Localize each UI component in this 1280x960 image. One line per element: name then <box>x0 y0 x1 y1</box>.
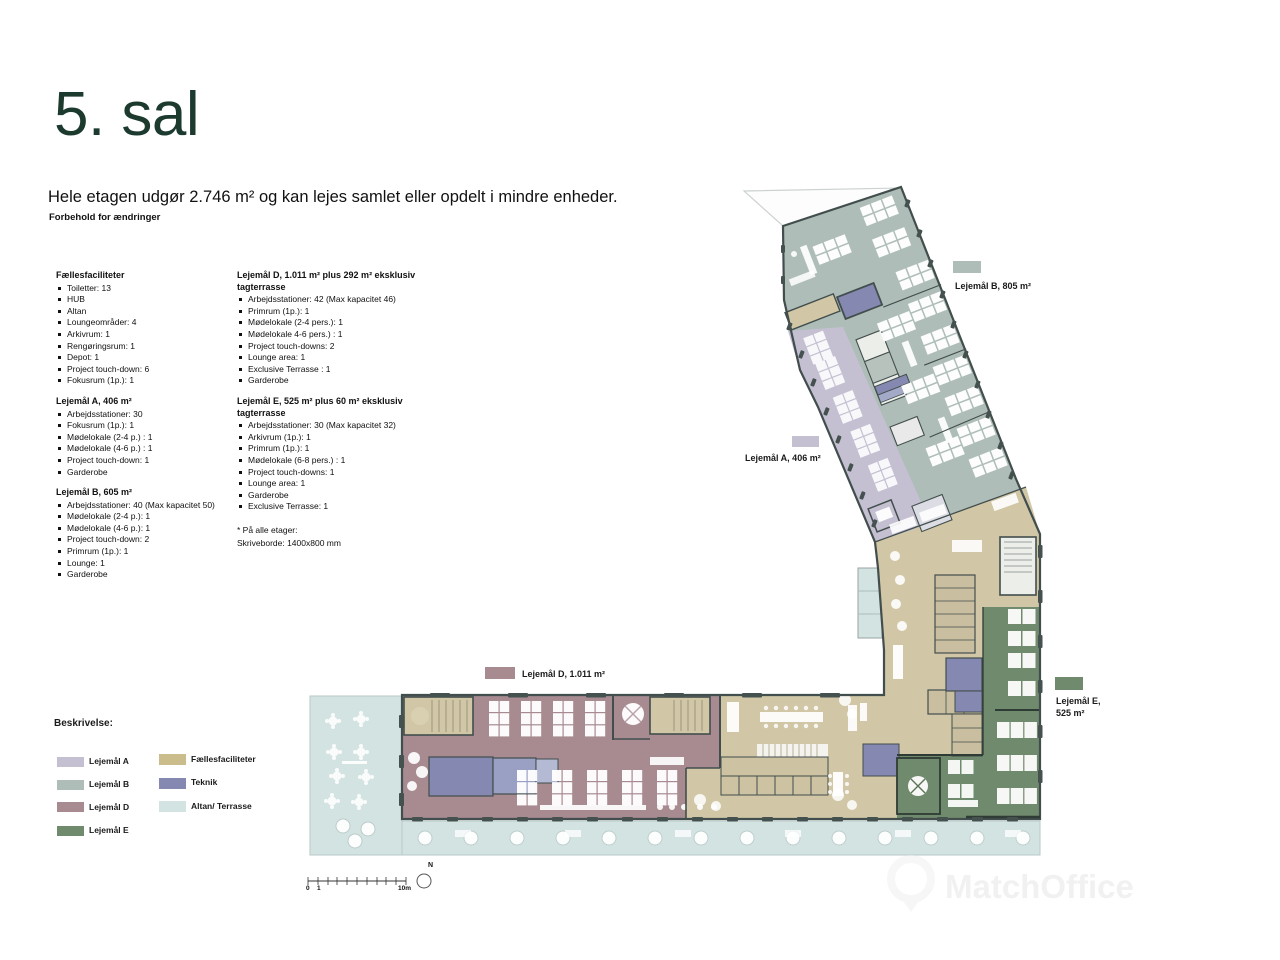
svg-text:525 m²: 525 m² <box>1056 708 1085 718</box>
svg-text:Lejemål B, 805 m²: Lejemål B, 805 m² <box>955 281 1031 291</box>
svg-text:10m: 10m <box>398 885 411 892</box>
svg-text:MatchOffice: MatchOffice <box>945 868 1134 905</box>
svg-text:Lejemål E,: Lejemål E, <box>1056 696 1101 706</box>
svg-text:0: 0 <box>306 885 310 892</box>
svg-text:N: N <box>428 862 433 869</box>
svg-text:Lejemål D, 1.011 m²: Lejemål D, 1.011 m² <box>522 669 605 679</box>
svg-text:Lejemål A, 406 m²: Lejemål A, 406 m² <box>745 453 821 463</box>
svg-text:1: 1 <box>317 885 321 892</box>
